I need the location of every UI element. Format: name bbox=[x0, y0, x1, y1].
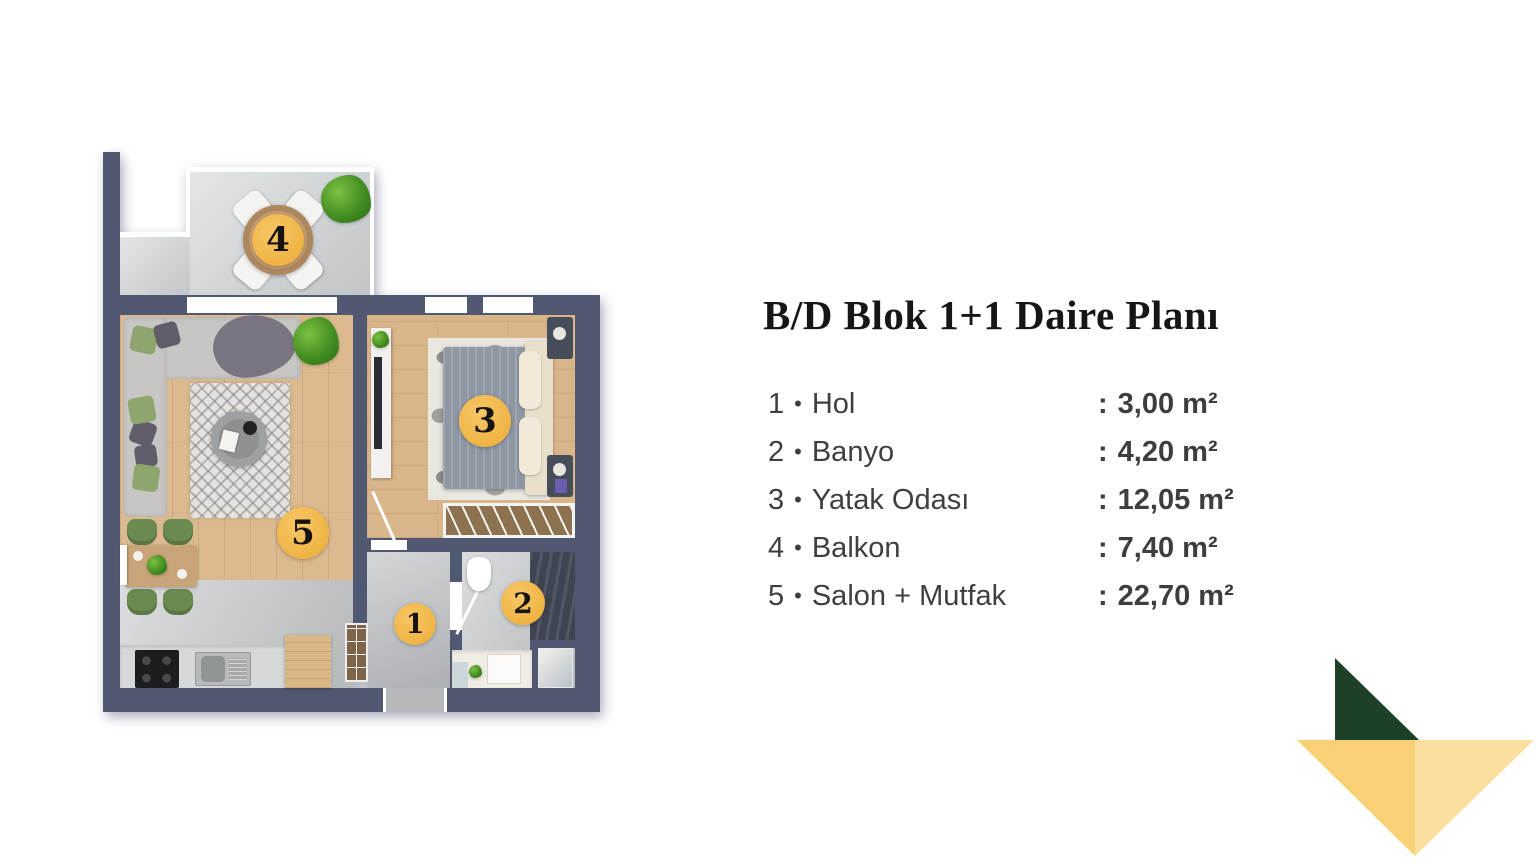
marker-5-salon-mutfak: 5 bbox=[277, 507, 329, 559]
legend-item-name: Banyo bbox=[812, 436, 894, 468]
legend-item-number: 5 bbox=[768, 580, 784, 612]
plate bbox=[133, 551, 143, 561]
legend-area-value: :7,40 m² bbox=[1098, 532, 1218, 565]
colon: : bbox=[1098, 484, 1108, 516]
legend-item-area: 7,40 m² bbox=[1118, 532, 1218, 564]
toilet bbox=[467, 557, 491, 591]
wall-right bbox=[575, 298, 600, 712]
bathroom-sink bbox=[487, 654, 521, 684]
balcony-plant bbox=[321, 175, 371, 223]
stove bbox=[135, 650, 179, 688]
radiator bbox=[120, 545, 127, 585]
bedroom-window bbox=[483, 297, 533, 313]
sofa-pillow bbox=[127, 395, 157, 425]
table-flowers bbox=[147, 555, 167, 575]
living-room-plant bbox=[293, 317, 339, 365]
nightstand-lamp bbox=[553, 463, 566, 476]
balcony-sliding-door bbox=[187, 297, 337, 313]
legend-item-name: Balkon bbox=[812, 532, 901, 564]
legend-area-value: :22,70 m² bbox=[1098, 580, 1234, 613]
legend-item-area: 12,05 m² bbox=[1118, 484, 1234, 516]
colon: : bbox=[1098, 436, 1108, 468]
colon: : bbox=[1098, 388, 1108, 420]
bullet-separator: • bbox=[794, 487, 802, 513]
legend-item-area: 3,00 m² bbox=[1118, 388, 1218, 420]
bullet-separator: • bbox=[794, 391, 802, 417]
legend-item-name: Yatak Odası bbox=[812, 484, 969, 516]
wall-shower-stub bbox=[530, 640, 578, 648]
legend-row-salon-mutfak: 5•Salon + Mutfak :22,70 m² bbox=[768, 580, 1288, 612]
entrance-door-opening bbox=[383, 688, 447, 712]
logo-yellow-triangle-right bbox=[1415, 740, 1534, 856]
logo-green-triangle bbox=[1335, 658, 1419, 740]
legend-row-hol: 1•Hol :3,00 m² bbox=[768, 388, 1288, 420]
kitchen-cabinet bbox=[285, 635, 331, 688]
dining-chair bbox=[163, 589, 193, 615]
dining-chair bbox=[127, 589, 157, 615]
sink-drainboard bbox=[229, 658, 247, 680]
legend-label: 3•Yatak Odası bbox=[768, 484, 969, 517]
bullet-separator: • bbox=[794, 439, 802, 465]
marker-4-balkon: 4 bbox=[252, 214, 304, 266]
sink-bowl bbox=[201, 656, 225, 682]
logo-yellow-triangle-left bbox=[1297, 740, 1415, 856]
page: { "title": "B/D Blok 1+1 Daire Planı", "… bbox=[0, 0, 1536, 864]
legend-area-value: :3,00 m² bbox=[1098, 388, 1218, 421]
plate bbox=[177, 569, 187, 579]
floor-plan: 1 2 3 4 5 bbox=[95, 145, 607, 717]
coffee-table-tray bbox=[243, 421, 257, 435]
wardrobe bbox=[443, 503, 575, 538]
marker-1-hol: 1 bbox=[394, 603, 436, 645]
legend-row-banyo: 2•Banyo :4,20 m² bbox=[768, 436, 1288, 468]
legend-item-area: 22,70 m² bbox=[1118, 580, 1234, 612]
marker-2-banyo: 2 bbox=[501, 581, 545, 625]
legend-row-yatak-odasi: 3•Yatak Odası :12,05 m² bbox=[768, 484, 1288, 516]
console-plant bbox=[372, 331, 389, 348]
legend-label: 1•Hol bbox=[768, 388, 855, 421]
legend-item-number: 1 bbox=[768, 388, 784, 420]
wall-left bbox=[103, 152, 120, 712]
legend-label: 4•Balkon bbox=[768, 532, 901, 565]
dining-chair bbox=[163, 519, 193, 545]
legend-item-number: 4 bbox=[768, 532, 784, 564]
shower-glass-panel bbox=[538, 648, 573, 688]
nightstand-lamp bbox=[553, 327, 566, 340]
wall-partition-living-bedroom bbox=[353, 315, 367, 623]
colon: : bbox=[1098, 580, 1108, 612]
page-title: B/D Blok 1+1 Daire Planı bbox=[763, 291, 1323, 339]
bed-pillow bbox=[519, 351, 541, 409]
legend-item-number: 3 bbox=[768, 484, 784, 516]
vanity-side bbox=[452, 662, 468, 688]
bullet-separator: • bbox=[794, 535, 802, 561]
bed-pillow bbox=[519, 417, 541, 475]
legend-item-name: Salon + Mutfak bbox=[812, 580, 1006, 612]
bedroom-window bbox=[425, 297, 467, 313]
legend-item-area: 4,20 m² bbox=[1118, 436, 1218, 468]
legend-item-name: Hol bbox=[812, 388, 856, 420]
bedroom-door-opening bbox=[371, 540, 407, 550]
legend-area-value: :4,20 m² bbox=[1098, 436, 1218, 469]
vanity-plant bbox=[469, 665, 482, 678]
legend-row-balkon: 4•Balkon :7,40 m² bbox=[768, 532, 1288, 564]
tv bbox=[374, 357, 382, 449]
shoe-cabinet bbox=[345, 623, 368, 682]
colon: : bbox=[1098, 532, 1108, 564]
dining-chair bbox=[127, 519, 157, 545]
legend-area-value: :12,05 m² bbox=[1098, 484, 1234, 517]
sofa-pillow bbox=[131, 463, 160, 492]
wall-bottom bbox=[108, 688, 600, 712]
nightstand-book bbox=[555, 479, 567, 493]
room-legend: 1•Hol :3,00 m² 2•Banyo :4,20 m² 3•Yatak … bbox=[768, 388, 1288, 612]
legend-label: 2•Banyo bbox=[768, 436, 894, 469]
bullet-separator: • bbox=[794, 583, 802, 609]
marker-3-yatak-odasi: 3 bbox=[459, 395, 511, 447]
legend-label: 5•Salon + Mutfak bbox=[768, 580, 1006, 613]
legend-item-number: 2 bbox=[768, 436, 784, 468]
